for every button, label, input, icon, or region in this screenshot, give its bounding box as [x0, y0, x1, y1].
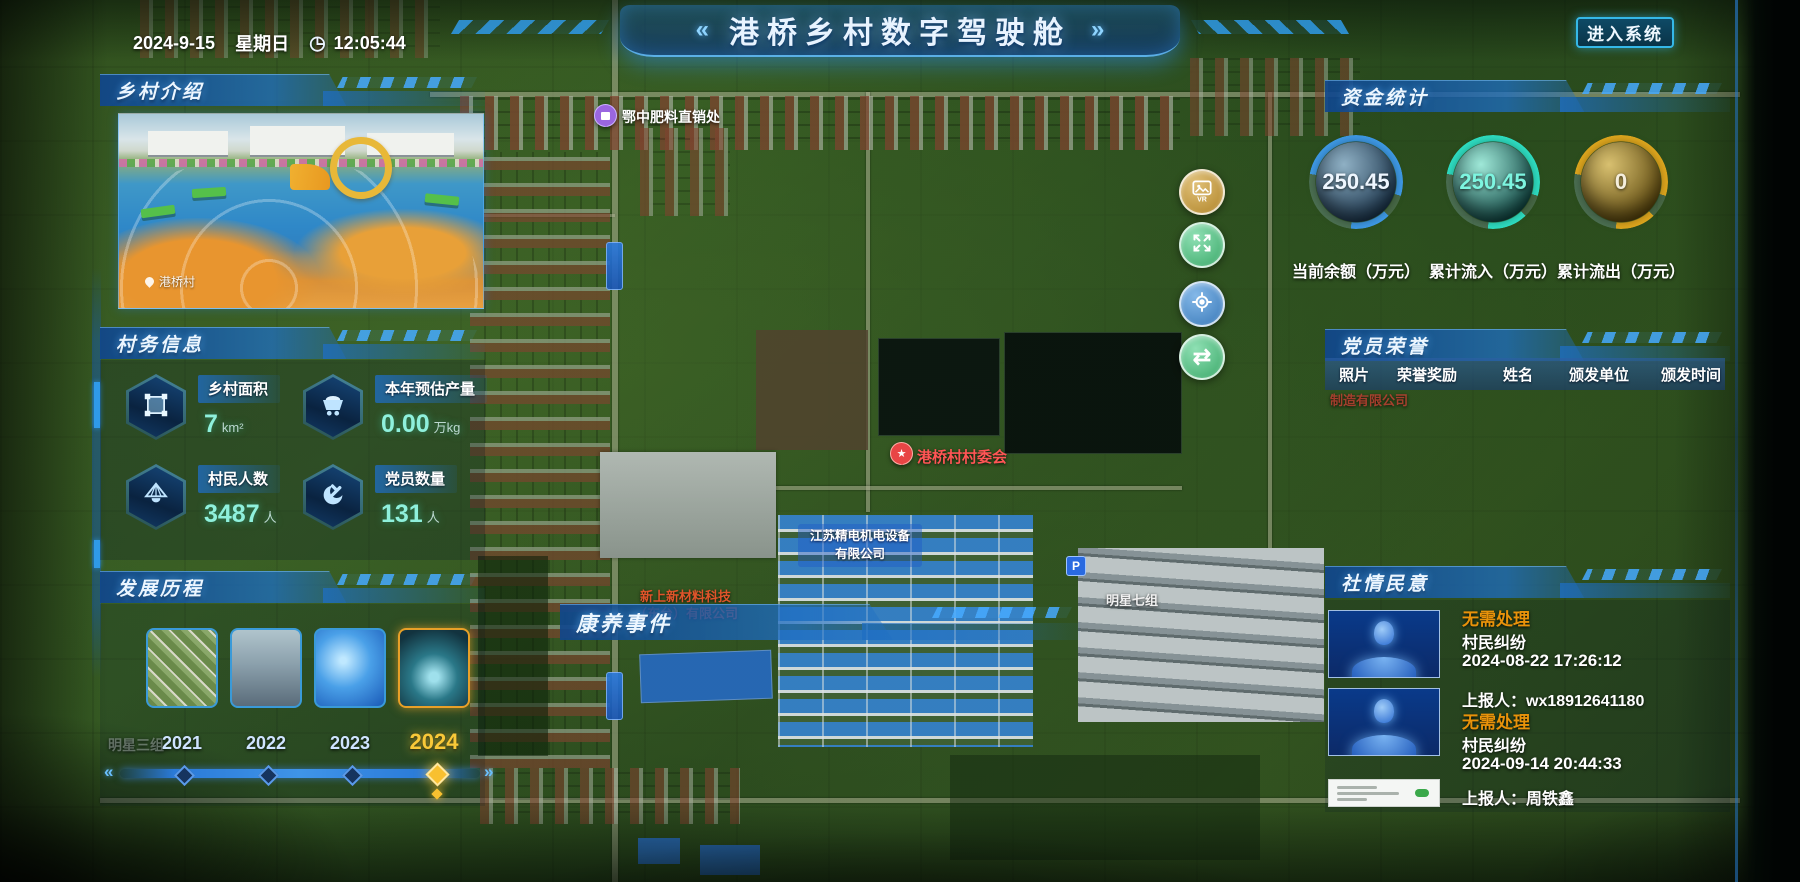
chevron-right-icon: »: [1091, 16, 1104, 44]
map-blue-roof: [700, 845, 760, 875]
map-fish-pond: [878, 338, 1000, 436]
hatch-decor: [1582, 569, 1722, 580]
map-trees: [478, 556, 548, 756]
stat-label: 村民人数: [198, 465, 280, 493]
panel-party-honors: 党员荣誉: [1325, 329, 1730, 361]
sentiment-reporter: 上报人：周铁鑫: [1462, 785, 1574, 809]
photo-caption: 港桥村: [145, 273, 195, 290]
panel-title: 党员荣誉: [1341, 332, 1429, 359]
weekday-text: 星期日: [235, 30, 289, 56]
year-2024[interactable]: 2024: [396, 729, 472, 755]
map-road: [1268, 92, 1272, 562]
stat-value: 0.00万kg: [375, 410, 487, 439]
gold-ring-sculpture: [330, 137, 392, 199]
chevron-left-icon: «: [696, 16, 709, 44]
hatch-decor: [1582, 83, 1722, 94]
sentiment-screenshot-thumb[interactable]: [1328, 779, 1440, 807]
map-factory-gray: [600, 452, 776, 558]
map-houses: [640, 128, 730, 216]
sentiment-avatar[interactable]: [1328, 688, 1440, 756]
panel-title: 社情民意: [1341, 569, 1429, 596]
company3-label: 制造有限公司: [1330, 390, 1408, 409]
map-construction: [756, 330, 868, 450]
village-committee-pin[interactable]: ★: [890, 442, 913, 465]
hatch-decor: [1582, 332, 1722, 343]
gauge-total-outflow: 0: [1574, 135, 1668, 229]
page-title: 港桥乡村数字驾驶舱: [729, 8, 1071, 52]
date-text: 2024-9-15: [133, 33, 215, 54]
panel-title: 资金统计: [1341, 83, 1429, 110]
gauge-label-outflow: 累计流出（万元）: [1531, 258, 1711, 282]
panel-fund-statistics: 资金统计: [1325, 80, 1730, 112]
honors-table-header: 照片 荣誉奖励 姓名 颁发单位 颁发时间: [1325, 358, 1725, 390]
map-houses: [480, 768, 740, 824]
clock-icon: ◷: [309, 32, 326, 55]
panel-health-events: 康养事件: [560, 604, 1080, 640]
layer-switch-button[interactable]: ⇄: [1179, 334, 1225, 380]
enter-system-button[interactable]: 进入系统: [1576, 17, 1674, 48]
fullscreen-button[interactable]: [1179, 222, 1225, 268]
year-thumbnail-2022[interactable]: [230, 628, 302, 708]
party-emblem-icon: [318, 480, 348, 515]
main-title-bar: « 港桥乡村数字驾驶舱 »: [620, 5, 1180, 57]
stat-villager-count: 村民人数 3487人: [126, 464, 280, 530]
locate-button[interactable]: [1179, 281, 1225, 327]
timeline-next-arrow[interactable]: »: [484, 762, 493, 782]
hatch-decor: [337, 574, 477, 585]
sentiment-avatar[interactable]: [1328, 610, 1440, 678]
panel-title: 村务信息: [116, 330, 204, 357]
expand-icon: [1190, 231, 1214, 260]
location-pin-icon: [143, 275, 156, 288]
stat-unit: 万kg: [434, 420, 461, 435]
road-sign: [606, 672, 623, 720]
village-photo[interactable]: 港桥村: [118, 113, 484, 309]
sentiment-category: 村民纠纷: [1462, 629, 1526, 653]
dashboard-screen: 鄂中肥料直销处 ★ 港桥村村委会 新上新材料科技 （东台）有限公司 江苏精电机电…: [0, 0, 1800, 882]
stat-value: 3487人: [198, 500, 280, 529]
title-wing-left: [451, 20, 609, 34]
panel-public-sentiment: 社情民意: [1325, 566, 1730, 598]
stat-unit: 人: [427, 510, 440, 525]
map-fish-pond: [1004, 332, 1182, 454]
panel-title: 发展历程: [116, 574, 204, 601]
timeline-prev-arrow[interactable]: «: [104, 762, 113, 782]
sentiment-status: 无需处理: [1462, 605, 1530, 630]
panel-title: 乡村介绍: [116, 77, 204, 104]
parking-icon: P: [1066, 556, 1086, 576]
stat-unit: 人: [264, 510, 277, 525]
hatch-decor: [337, 330, 477, 341]
year-thumbnail-2023[interactable]: [314, 628, 386, 708]
swap-icon: ⇄: [1193, 346, 1211, 368]
panel-village-intro: 乡村介绍: [100, 74, 485, 106]
gauge-total-inflow: 250.45: [1446, 135, 1540, 229]
vr-photo-icon: VR: [1189, 177, 1215, 208]
gauge-value: 250.45: [1309, 135, 1403, 229]
column-photo: 照片: [1339, 364, 1397, 385]
map-blue-roof: [638, 838, 680, 864]
column-name: 姓名: [1503, 364, 1569, 385]
title-wing-right: [1191, 20, 1349, 34]
datetime-bar: 2024-9-15 星期日 ◷ 12:05:44: [133, 30, 406, 56]
time-text: 12:05:44: [334, 33, 406, 54]
column-award: 荣誉奖励: [1397, 364, 1503, 385]
fertilizer-store-pin[interactable]: [594, 104, 617, 127]
map-pond-blue: [639, 650, 773, 704]
stat-value: 7km²: [198, 410, 280, 439]
vr-photo-button[interactable]: VR: [1179, 169, 1225, 215]
map-dark-field: [950, 755, 1260, 860]
sentiment-time: 2024-08-22 17:26:12: [1462, 651, 1622, 671]
stat-label: 党员数量: [375, 465, 457, 493]
svg-text:VR: VR: [1197, 196, 1207, 203]
stat-value: 131人: [375, 500, 457, 529]
map-houses: [460, 96, 1180, 150]
harvest-cart-icon: [318, 390, 348, 425]
gauge-current-balance: 250.45: [1309, 135, 1403, 229]
stat-unit: km²: [222, 420, 244, 435]
company2-label: 江苏精电机电设备 有限公司: [798, 524, 922, 567]
panel-village-info: 村务信息: [100, 327, 485, 359]
road-sign: [606, 242, 623, 290]
hatch-decor: [932, 607, 1072, 618]
sentiment-category: 村民纠纷: [1462, 732, 1526, 756]
sentiment-time: 2024-09-14 20:44:33: [1462, 754, 1622, 774]
target-icon: [1189, 289, 1215, 320]
panel-title: 康养事件: [576, 608, 672, 638]
land-area-icon: [141, 390, 171, 425]
right-bezel: [1738, 0, 1800, 882]
year-thumbnail-2024[interactable]: [398, 628, 470, 708]
stat-estimated-yield: 本年预估产量 0.00万kg: [303, 374, 487, 440]
gauge-value: 250.45: [1446, 135, 1540, 229]
villager-hat-icon: [141, 480, 171, 515]
sentiment-status: 无需处理: [1462, 708, 1530, 733]
stat-label: 乡村面积: [198, 375, 280, 403]
fertilizer-store-label: 鄂中肥料直销处: [622, 107, 720, 127]
village-committee-label: 港桥村村委会: [917, 446, 1007, 467]
group7-label: 明星七组: [1106, 590, 1158, 609]
column-issuer: 颁发单位: [1569, 364, 1661, 385]
stat-village-area: 乡村面积 7km²: [126, 374, 280, 440]
year-2023[interactable]: 2023: [312, 733, 388, 754]
year-2021[interactable]: 2021: [144, 733, 220, 754]
year-2022[interactable]: 2022: [228, 733, 304, 754]
panel-development-history: 发展历程: [100, 571, 485, 603]
gauge-value: 0: [1574, 135, 1668, 229]
hatch-decor: [337, 77, 477, 88]
star-icon: ★: [897, 447, 907, 460]
stat-party-members: 党员数量 131人: [303, 464, 457, 530]
stat-label: 本年预估产量: [375, 375, 487, 403]
year-thumbnail-2021[interactable]: [146, 628, 218, 708]
map-white-warehouses: [1078, 548, 1324, 722]
column-issue-date: 颁发时间: [1661, 364, 1721, 385]
